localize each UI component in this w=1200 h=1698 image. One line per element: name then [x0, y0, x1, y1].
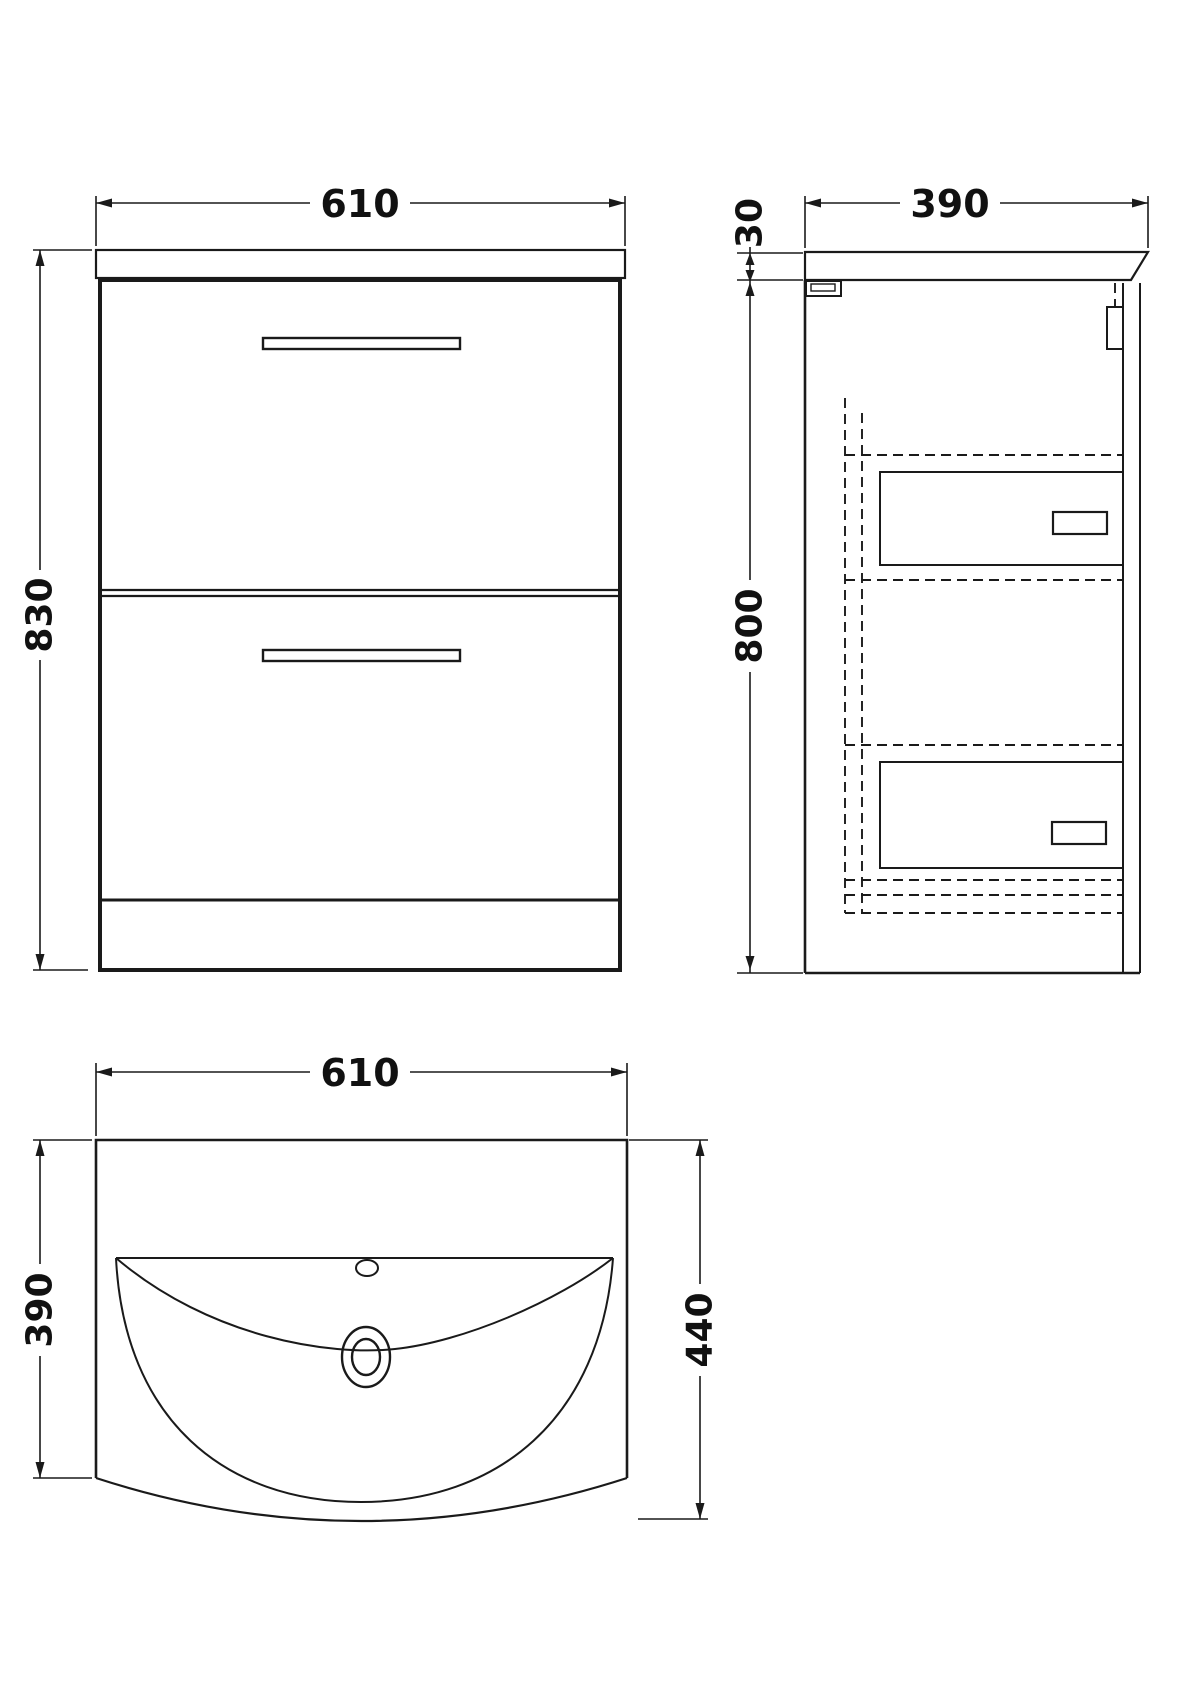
- basin-bowl-outline: [116, 1258, 613, 1502]
- side-view: 390 30 800: [729, 182, 1148, 973]
- top-drawer-handle: [263, 338, 460, 349]
- front-width-dim-label: 610: [320, 182, 399, 226]
- upper-drawer-hidden-box: [845, 455, 1123, 580]
- drain-outer-ring: [342, 1327, 390, 1387]
- side-worktop: [805, 252, 1148, 280]
- plan-view: 610 390 440: [19, 1051, 721, 1521]
- side-worktop-thickness-dim-label: 30: [730, 198, 771, 248]
- plan-width-dimension: 610: [96, 1051, 627, 1136]
- front-worktop: [96, 250, 625, 278]
- worktop-fixing-clip-inner: [811, 284, 835, 291]
- bottom-drawer-handle: [263, 650, 460, 661]
- side-depth-dim-label: 390: [910, 182, 989, 226]
- plan-depth-dimension: 390: [19, 1140, 92, 1478]
- front-width-dimension: 610: [96, 182, 625, 246]
- front-height-dimension: 830: [19, 250, 92, 970]
- tap-hole: [356, 1260, 378, 1276]
- basin-ledge-curve: [116, 1258, 613, 1350]
- plan-overall-depth-dim-label: 440: [680, 1292, 721, 1367]
- front-height-dim-label: 830: [20, 577, 61, 652]
- side-carcass-height-dim-label: 800: [730, 588, 771, 663]
- plan-width-dim-label: 610: [320, 1051, 399, 1095]
- drawing-sheet: 610 830: [0, 0, 1200, 1698]
- lower-drawer-side-handle: [1052, 822, 1106, 844]
- side-depth-dimension: 390: [805, 182, 1148, 248]
- technical-drawing-canvas: 610 830: [0, 0, 1200, 1698]
- side-height-dimensions: 30 800: [729, 198, 803, 973]
- upper-drawer-side-handle: [1053, 512, 1107, 534]
- drain-inner-ring: [352, 1339, 380, 1375]
- front-view: 610 830: [19, 182, 625, 970]
- plan-overall-depth-dimension: 440: [629, 1140, 721, 1519]
- front-bracket: [1107, 307, 1123, 349]
- plan-front-bulge: [96, 1478, 627, 1521]
- front-carcass: [100, 280, 620, 970]
- plan-depth-dim-label: 390: [20, 1272, 61, 1347]
- lower-drawer-hidden-box: [845, 745, 1123, 880]
